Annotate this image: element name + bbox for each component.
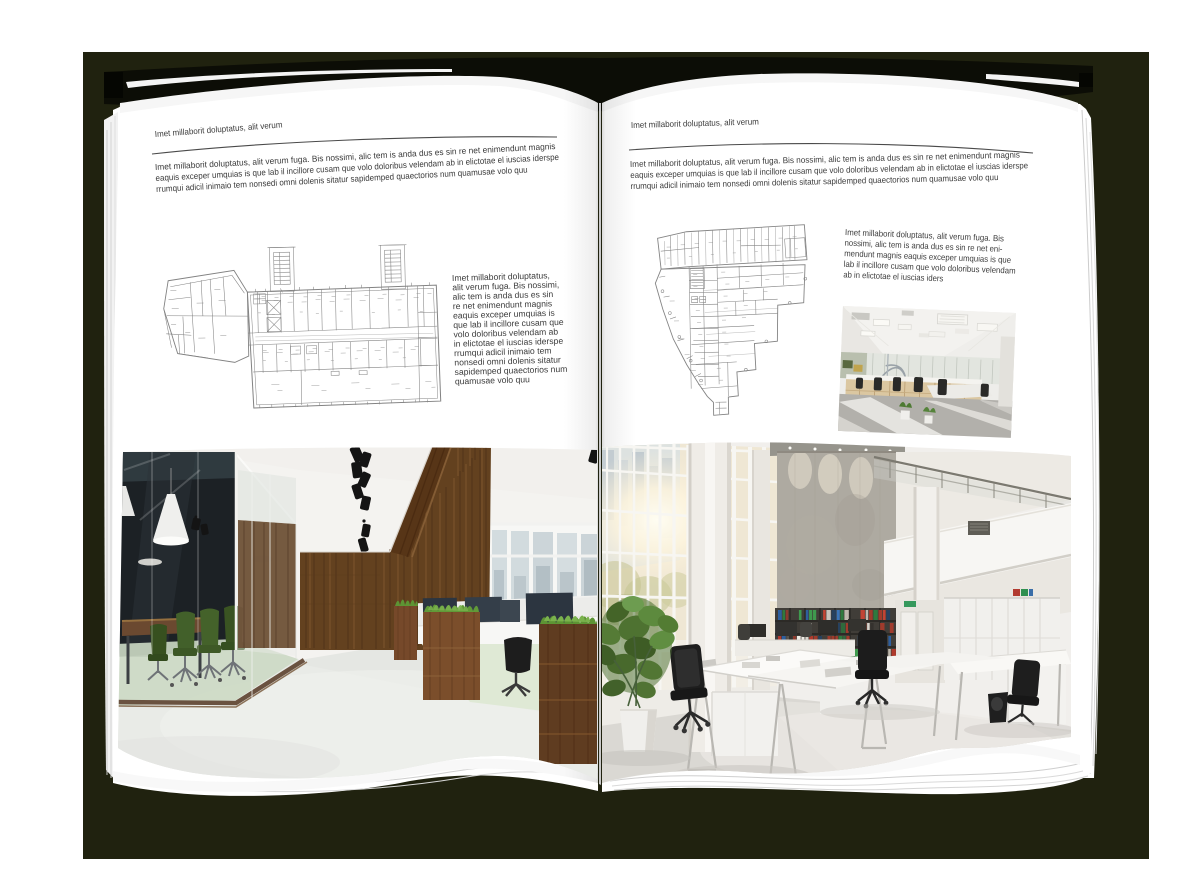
svg-text:quamusae volo quu: quamusae volo quu xyxy=(455,374,530,386)
